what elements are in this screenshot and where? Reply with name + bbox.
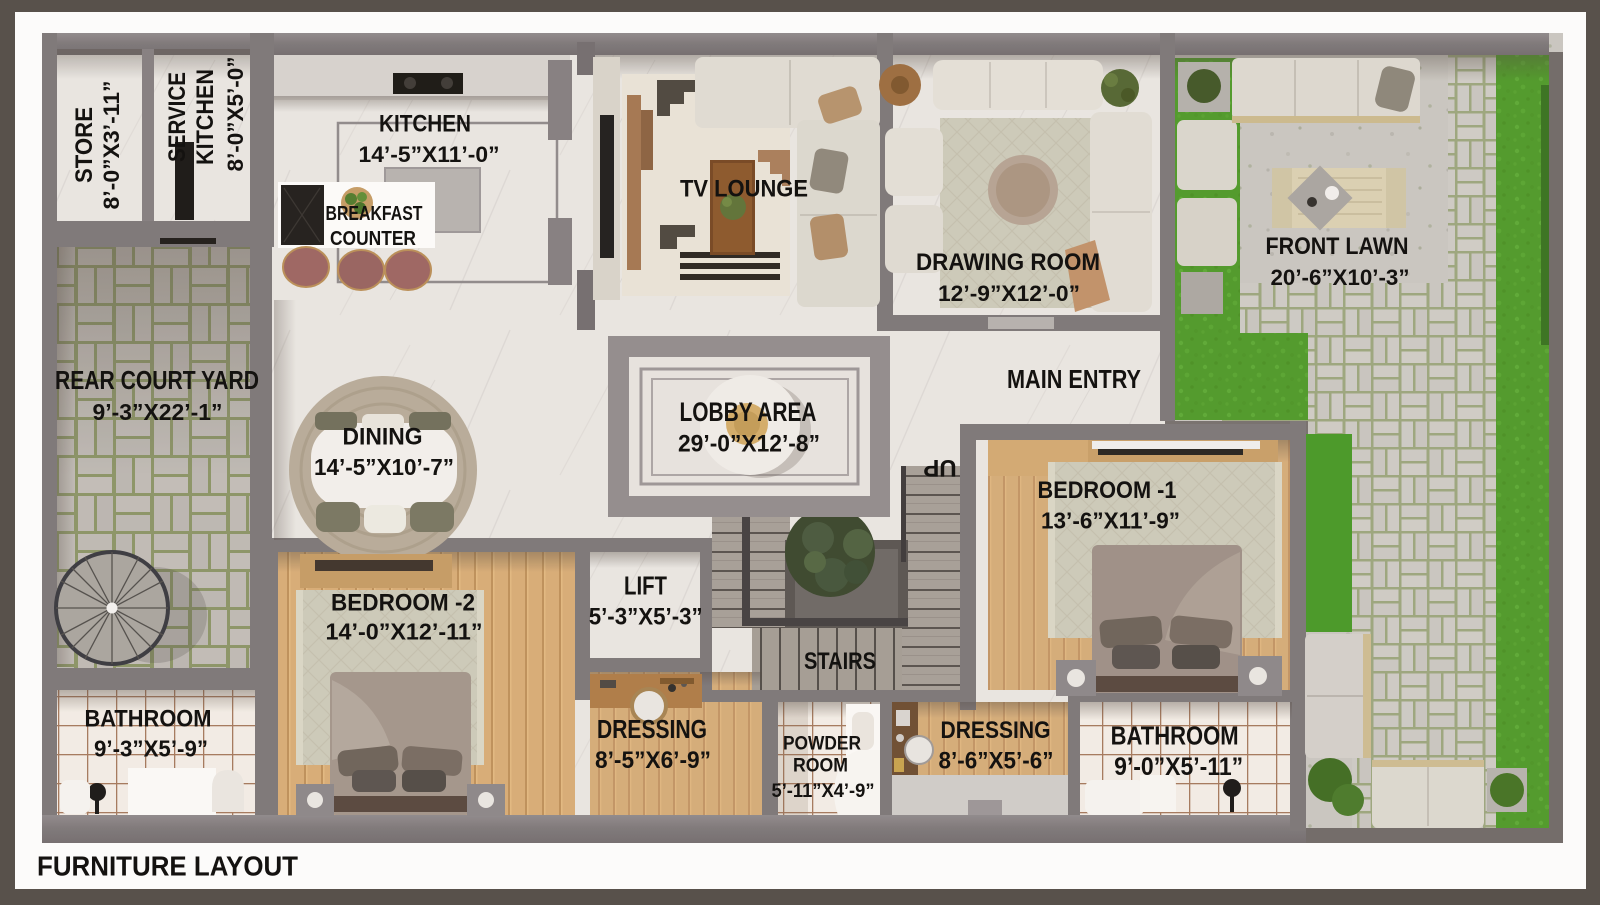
svg-text:13’-6”X11’-9”: 13’-6”X11’-9” — [1041, 508, 1180, 534]
svg-text:ROOM: ROOM — [793, 755, 848, 777]
svg-text:BREAKFAST: BREAKFAST — [326, 203, 423, 225]
svg-text:29’-0”X12’-8”: 29’-0”X12’-8” — [678, 431, 820, 458]
svg-text:POWDER: POWDER — [783, 733, 861, 755]
svg-text:SERVICE: SERVICE — [164, 72, 191, 162]
svg-text:BATHROOM: BATHROOM — [85, 706, 212, 733]
svg-text:TV LOUNGE: TV LOUNGE — [680, 176, 808, 203]
svg-text:8’-5”X6’-9”: 8’-5”X6’-9” — [595, 747, 711, 774]
svg-text:8’-6”X5’-6”: 8’-6”X5’-6” — [939, 748, 1054, 775]
svg-text:5’-11”X4’-9”: 5’-11”X4’-9” — [772, 780, 875, 802]
svg-text:LIFT: LIFT — [624, 573, 667, 601]
svg-text:LOBBY AREA: LOBBY AREA — [680, 397, 817, 427]
svg-text:DINING: DINING — [343, 424, 423, 451]
svg-text:BATHROOM: BATHROOM — [1111, 723, 1239, 751]
svg-text:12’-9”X12’-0”: 12’-9”X12’-0” — [938, 281, 1080, 306]
svg-text:UP: UP — [923, 454, 956, 481]
svg-text:5’-3”X5’-3”: 5’-3”X5’-3” — [589, 604, 703, 631]
svg-text:BEDROOM -1: BEDROOM -1 — [1038, 477, 1177, 504]
svg-text:DRESSING: DRESSING — [941, 717, 1051, 744]
svg-text:9’-3”X5’-9”: 9’-3”X5’-9” — [94, 736, 208, 762]
svg-text:9’-0”X5’-11”: 9’-0”X5’-11” — [1114, 753, 1243, 781]
svg-text:8’-0”X5’-0”: 8’-0”X5’-0” — [223, 57, 248, 172]
svg-text:KITCHEN: KITCHEN — [379, 111, 471, 138]
svg-text:FRONT LAWN: FRONT LAWN — [1266, 233, 1409, 260]
svg-text:MAIN ENTRY: MAIN ENTRY — [1007, 364, 1141, 394]
svg-text:14’-5”X11’-0”: 14’-5”X11’-0” — [359, 142, 500, 167]
svg-text:FURNITURE LAYOUT: FURNITURE LAYOUT — [37, 851, 298, 882]
svg-text:KITCHEN: KITCHEN — [192, 69, 219, 165]
svg-text:DRAWING ROOM: DRAWING ROOM — [916, 249, 1100, 276]
svg-text:14’-0”X12’-11”: 14’-0”X12’-11” — [326, 619, 483, 645]
svg-text:REAR COURT YARD: REAR COURT YARD — [55, 367, 259, 395]
svg-text:COUNTER: COUNTER — [330, 228, 416, 250]
svg-text:DRESSING: DRESSING — [597, 716, 707, 744]
svg-text:STAIRS: STAIRS — [804, 648, 876, 675]
svg-text:BEDROOM -2: BEDROOM -2 — [331, 590, 475, 617]
svg-text:9’-3”X22’-1”: 9’-3”X22’-1” — [93, 399, 223, 425]
svg-text:STORE: STORE — [71, 107, 98, 183]
svg-text:20’-6”X10’-3”: 20’-6”X10’-3” — [1271, 265, 1410, 290]
svg-text:8’-0”X3’-11”: 8’-0”X3’-11” — [99, 81, 124, 210]
svg-text:14’-5”X10’-7”: 14’-5”X10’-7” — [314, 454, 454, 480]
